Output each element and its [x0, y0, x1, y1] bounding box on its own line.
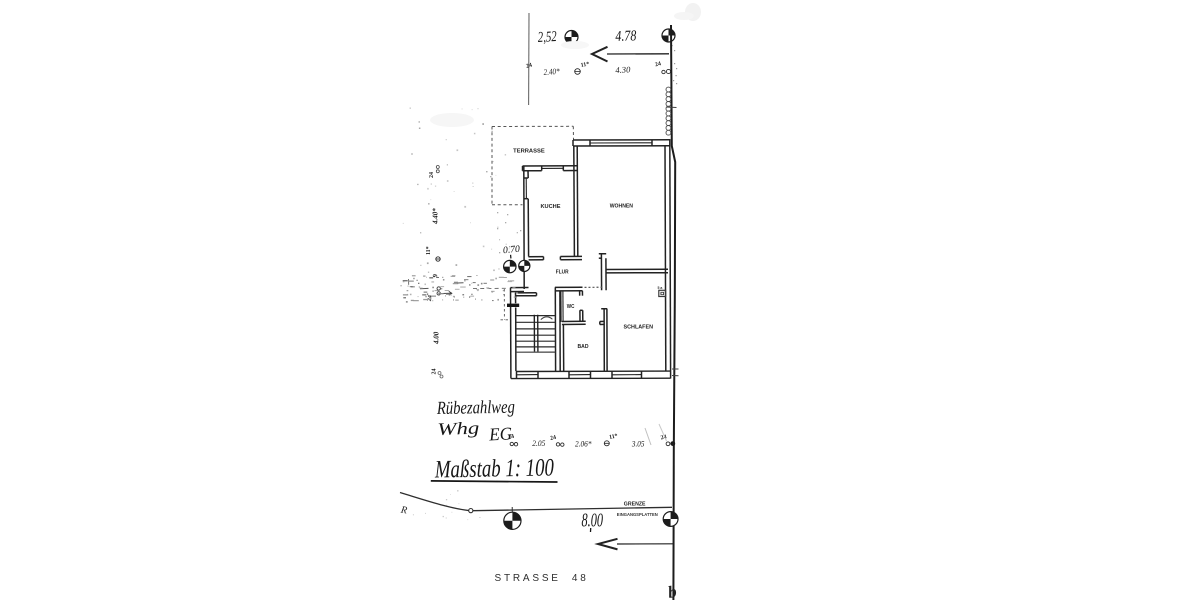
- svg-text:TERRASSE: TERRASSE: [513, 148, 545, 154]
- svg-text:24: 24: [508, 434, 515, 441]
- svg-text:2.05: 2.05: [532, 438, 545, 448]
- svg-text:24: 24: [432, 369, 438, 375]
- svg-text:WOHNEN: WOHNEN: [610, 203, 633, 209]
- svg-text:Maßstab 1: 100: Maßstab 1: 100: [434, 454, 555, 483]
- svg-text:SCHLAFEN: SCHLAFEN: [624, 325, 654, 331]
- svg-text:4.30: 4.30: [615, 64, 631, 75]
- svg-text:0.70: 0.70: [503, 244, 521, 256]
- svg-text:EINGANGSPLATTEN: EINGANGSPLATTEN: [617, 512, 658, 517]
- svg-text:3.05: 3.05: [631, 439, 644, 449]
- svg-text:4.00: 4.00: [433, 331, 441, 345]
- svg-text:11*: 11*: [426, 246, 432, 255]
- svg-text:2,52: 2,52: [537, 29, 557, 46]
- svg-text:8.00: 8.00: [582, 511, 604, 532]
- svg-text:Whg: Whg: [437, 418, 480, 439]
- svg-text:24: 24: [429, 172, 435, 178]
- svg-text:GRENZE: GRENZE: [624, 501, 646, 507]
- svg-text:KUCHE: KUCHE: [541, 204, 561, 210]
- svg-text:2.06*: 2.06*: [575, 439, 592, 449]
- svg-text:WC: WC: [567, 304, 575, 310]
- svg-text:2.40*: 2.40*: [543, 66, 560, 77]
- svg-text:Rübezahlweg: Rübezahlweg: [436, 398, 515, 419]
- svg-text:BAD: BAD: [578, 344, 589, 350]
- svg-text:STRASSE 48: STRASSE 48: [495, 573, 589, 584]
- svg-text:FLUR: FLUR: [556, 270, 569, 276]
- svg-text:5 a: 5 a: [658, 286, 663, 290]
- svg-text:24: 24: [550, 435, 557, 442]
- svg-text:4.40*: 4.40*: [432, 208, 440, 225]
- svg-text:4.78: 4.78: [615, 28, 637, 45]
